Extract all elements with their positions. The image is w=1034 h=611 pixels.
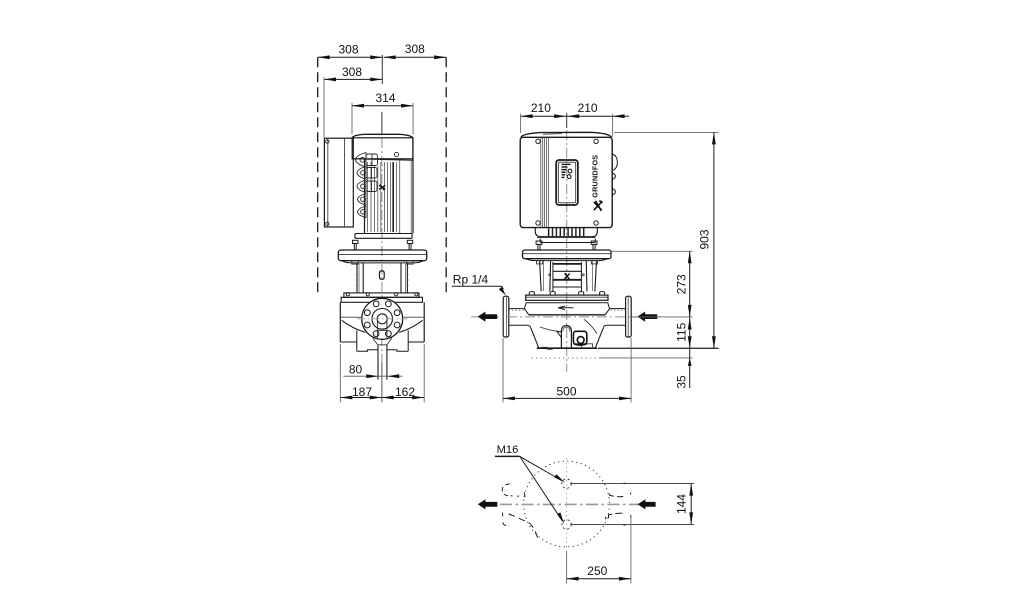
svg-text:210: 210 (531, 101, 551, 115)
svg-text:M16: M16 (497, 444, 519, 456)
svg-text:903: 903 (698, 229, 712, 249)
svg-text:273: 273 (674, 274, 688, 294)
svg-text:GRUNDFOS: GRUNDFOS (591, 155, 600, 198)
svg-text:35: 35 (674, 375, 688, 389)
svg-text:308: 308 (338, 43, 358, 57)
svg-text:Rp 1/4: Rp 1/4 (453, 273, 489, 287)
svg-text:187: 187 (352, 385, 372, 399)
svg-text:144: 144 (674, 494, 688, 514)
svg-text:308: 308 (342, 65, 362, 79)
svg-text:115: 115 (674, 322, 688, 341)
svg-text:250: 250 (587, 564, 607, 578)
svg-text:314: 314 (375, 91, 395, 105)
svg-text:162: 162 (395, 385, 415, 399)
svg-text:210: 210 (578, 101, 598, 115)
svg-text:500: 500 (556, 384, 576, 398)
svg-text:80: 80 (349, 363, 363, 377)
svg-text:308: 308 (405, 42, 425, 56)
